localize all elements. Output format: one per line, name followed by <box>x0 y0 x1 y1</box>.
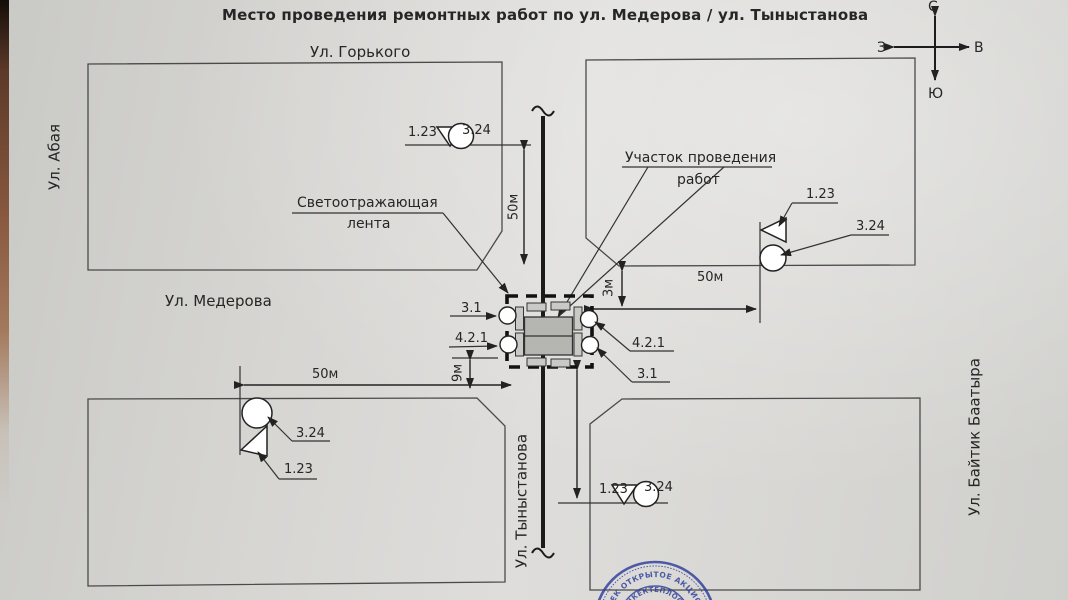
sign-label-north-warning: 1.23 <box>408 126 437 139</box>
street-label-baytik: Ул. Байтик Баатыра <box>968 358 983 516</box>
reflective-tape-label-line2: лента <box>347 217 390 231</box>
warning-sign-triangle-west <box>241 426 267 456</box>
dimension-label-east-50m: 50м <box>697 271 723 284</box>
sign-label-north-limit: 3.24 <box>462 124 491 137</box>
round-stamp: Г. БИШКЕК ОТКРЫТОЕ АКЦИОНЕРНОЕ «БИШКЕКТЕ… <box>0 0 715 600</box>
compass-east-label: В <box>974 41 984 55</box>
dimension-label-west-50m: 50м <box>312 368 338 381</box>
barrier-strip-bottom-right <box>551 359 570 367</box>
site-label-leader-right-bottom <box>600 351 670 382</box>
sign-label-east-warning: 1.23 <box>806 188 835 201</box>
stamp-inner-textpath: «БИШКЕКТЕПЛОСЕТЬ» <box>619 586 691 600</box>
compass-west-label: З <box>877 41 886 55</box>
road-break-bottom <box>532 549 554 558</box>
site-sign-label-right-top: 4.2.1 <box>632 337 665 350</box>
reflective-tape-leader <box>443 213 508 293</box>
barrier-strip-left-top <box>516 307 524 330</box>
dimension-label-north-50m: 50м <box>508 194 521 220</box>
street-label-abay: Ул. Абая <box>48 124 63 190</box>
east-limit-leader <box>781 235 851 255</box>
street-label-mederov: Ул. Медерова <box>165 294 272 309</box>
site-sign-label-left-bottom: 4.2.1 <box>455 332 488 345</box>
plan-drawing: Г. БИШКЕК ОТКРЫТОЕ АКЦИОНЕРНОЕ «БИШКЕКТЕ… <box>0 0 1068 600</box>
site-sign-circle-left-bottom <box>500 336 517 353</box>
barrier-strip-top-left <box>527 303 546 311</box>
limit-sign-circle-west <box>242 398 272 428</box>
warning-sign-triangle-east <box>761 218 786 242</box>
street-label-tynystanov: Ул. Тыныстанова <box>515 434 530 568</box>
stamp-outer-text: Г. БИШКЕК ОТКРЫТОЕ АКЦИОНЕРНОЕ <box>0 0 707 600</box>
sign-label-south-limit: 3.24 <box>644 481 673 494</box>
sign-label-south-warning: 1.23 <box>599 483 628 496</box>
street-label-gorky: Ул. Горького <box>310 45 410 60</box>
work-area-label-line2: работ <box>677 173 720 187</box>
west-limit-leader <box>268 417 292 441</box>
compass-south-label: Ю <box>928 87 943 101</box>
road-break-top <box>532 107 554 116</box>
block-northwest <box>88 62 502 270</box>
work-area-leader-2 <box>560 167 724 315</box>
site-sign-circle-right-top <box>581 311 598 328</box>
site-sign-circle-right-bottom <box>582 337 599 354</box>
stamp-inner-text: «БИШКЕКТЕПЛОСЕТЬ» <box>619 586 691 600</box>
site-sign-label-left-top: 3.1 <box>461 302 482 315</box>
stamp-outer-textpath: Г. БИШКЕК ОТКРЫТОЕ АКЦИОНЕРНОЕ <box>0 0 707 600</box>
limit-sign-circle-east <box>760 245 786 271</box>
page-title: Место проведения ремонтных работ по ул. … <box>222 8 868 23</box>
dimension-label-east-3m: 3м <box>603 279 616 297</box>
sign-label-west-warning: 1.23 <box>284 463 313 476</box>
scanned-plan-photo: Г. БИШКЕК ОТКРЫТОЕ АКЦИОНЕРНОЕ «БИШКЕКТЕ… <box>0 0 1068 600</box>
work-area-label-line1: Участок проведения <box>625 151 776 165</box>
sign-label-east-limit: 3.24 <box>856 220 885 233</box>
barrier-strip-top-right <box>551 302 570 310</box>
reflective-tape-label-line1: Светоотражающая <box>297 196 438 210</box>
sign-label-west-limit: 3.24 <box>296 427 325 440</box>
barrier-strip-bottom-left <box>527 358 546 366</box>
site-sign-circle-left-top <box>499 307 516 324</box>
compass-north-label: С <box>928 0 938 14</box>
west-warning-leader <box>258 452 279 479</box>
dimension-label-west-9m: 9м <box>452 364 465 382</box>
site-sign-label-right-bottom: 3.1 <box>637 368 658 381</box>
site-label-leader-left-bottom <box>449 346 497 347</box>
compass-rose <box>894 16 969 80</box>
barrier-strip-right-bottom <box>574 333 582 356</box>
